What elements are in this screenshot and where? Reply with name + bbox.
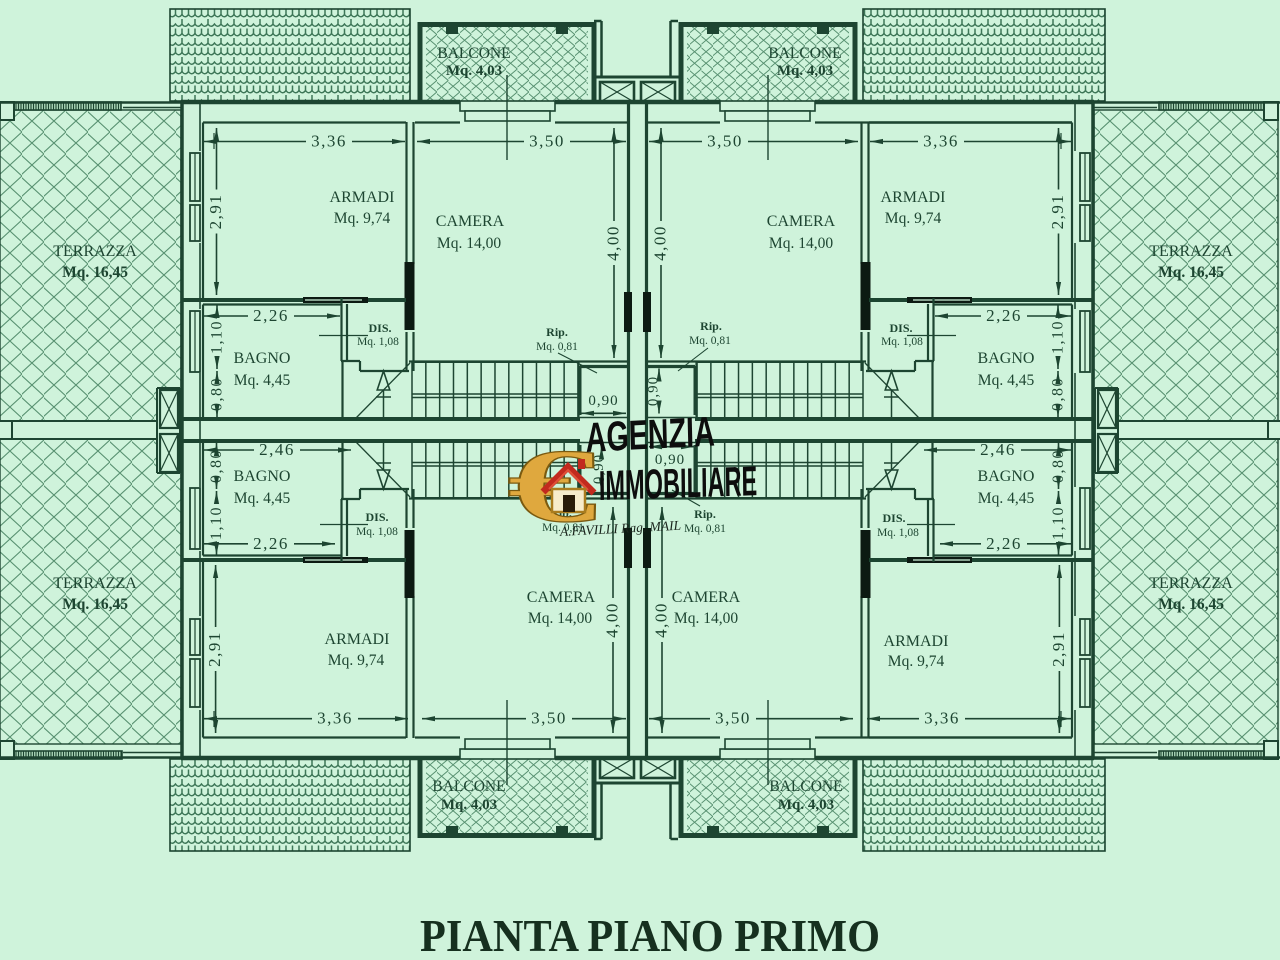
- svg-text:0,90: 0,90: [646, 376, 662, 406]
- svg-text:2,46: 2,46: [980, 440, 1016, 459]
- svg-text:TERRAZZA: TERRAZZA: [53, 243, 137, 260]
- svg-text:2,91: 2,91: [1049, 631, 1068, 667]
- svg-text:2,26: 2,26: [253, 306, 289, 325]
- svg-text:BALCONE: BALCONE: [432, 778, 505, 795]
- svg-text:BALCONE: BALCONE: [769, 778, 842, 795]
- svg-text:3,50: 3,50: [707, 132, 743, 151]
- svg-text:3,36: 3,36: [317, 709, 353, 728]
- svg-text:Mq. 4,03: Mq. 4,03: [777, 63, 833, 79]
- svg-text:DIS.: DIS.: [368, 321, 391, 335]
- svg-text:3,36: 3,36: [923, 132, 959, 151]
- svg-text:Mq. 4,45: Mq. 4,45: [234, 490, 291, 507]
- svg-text:TERRAZZA: TERRAZZA: [1149, 243, 1233, 260]
- svg-text:3,50: 3,50: [529, 132, 565, 151]
- svg-text:PIANTA PIANO PRIMO: PIANTA PIANO PRIMO: [420, 910, 880, 960]
- svg-text:BALCONE: BALCONE: [768, 45, 841, 62]
- svg-text:4,00: 4,00: [651, 225, 670, 261]
- svg-text:Mq. 9,74: Mq. 9,74: [888, 653, 945, 670]
- svg-text:Mq. 9,74: Mq. 9,74: [328, 652, 385, 669]
- svg-text:0,80: 0,80: [208, 449, 225, 483]
- svg-text:Rip.: Rip.: [700, 319, 722, 333]
- svg-text:3,50: 3,50: [715, 709, 751, 728]
- svg-text:IMMOBILIARE: IMMOBILIARE: [599, 458, 758, 510]
- svg-text:3,36: 3,36: [924, 709, 960, 728]
- svg-text:BAGNO: BAGNO: [234, 350, 291, 367]
- svg-text:Mq. 0,81: Mq. 0,81: [536, 341, 578, 353]
- svg-text:Rip.: Rip.: [694, 507, 716, 521]
- svg-text:Mq. 14,00: Mq. 14,00: [437, 235, 501, 252]
- svg-text:3,50: 3,50: [531, 709, 567, 728]
- svg-text:Mq. 4,03: Mq. 4,03: [446, 63, 502, 79]
- svg-text:Mq. 4,45: Mq. 4,45: [978, 372, 1035, 389]
- svg-text:1,10: 1,10: [208, 506, 225, 540]
- svg-text:2,91: 2,91: [205, 631, 224, 667]
- svg-text:CAMERA: CAMERA: [672, 589, 741, 606]
- svg-text:Mq. 16,45: Mq. 16,45: [62, 264, 128, 281]
- svg-text:3,36: 3,36: [311, 132, 347, 151]
- svg-text:Mq. 9,74: Mq. 9,74: [885, 210, 942, 227]
- svg-text:1,10: 1,10: [1050, 320, 1067, 354]
- svg-text:4,00: 4,00: [604, 225, 623, 261]
- svg-text:Mq. 4,03: Mq. 4,03: [778, 797, 834, 813]
- svg-text:Mq. 4,45: Mq. 4,45: [978, 490, 1035, 507]
- svg-text:CAMERA: CAMERA: [767, 213, 836, 230]
- svg-text:ARMADI: ARMADI: [881, 189, 946, 206]
- svg-text:ARMADI: ARMADI: [325, 631, 390, 648]
- svg-text:2,26: 2,26: [986, 306, 1022, 325]
- svg-text:0,80: 0,80: [1050, 449, 1067, 483]
- svg-text:1,10: 1,10: [1050, 506, 1067, 540]
- svg-text:0,90: 0,90: [588, 393, 618, 409]
- svg-text:BAGNO: BAGNO: [978, 468, 1035, 485]
- svg-text:AGENZIA: AGENZIA: [585, 408, 715, 461]
- svg-text:DIS.: DIS.: [882, 511, 905, 525]
- svg-text:TERRAZZA: TERRAZZA: [1149, 575, 1233, 592]
- svg-text:ARMADI: ARMADI: [330, 189, 395, 206]
- svg-text:1,10: 1,10: [209, 320, 226, 354]
- svg-text:CAMERA: CAMERA: [436, 213, 505, 230]
- svg-text:Mq. 14,00: Mq. 14,00: [528, 610, 592, 627]
- svg-text:DIS.: DIS.: [889, 321, 912, 335]
- svg-text:Mq. 14,00: Mq. 14,00: [769, 235, 833, 252]
- svg-text:Mq. 1,08: Mq. 1,08: [877, 527, 919, 539]
- svg-text:BAGNO: BAGNO: [978, 350, 1035, 367]
- svg-text:Mq. 1,08: Mq. 1,08: [881, 336, 923, 348]
- svg-text:Mq. 0,81: Mq. 0,81: [684, 523, 726, 535]
- svg-text:0,80: 0,80: [209, 377, 226, 411]
- svg-text:BAGNO: BAGNO: [234, 468, 291, 485]
- svg-text:Mq. 16,45: Mq. 16,45: [62, 596, 128, 613]
- svg-text:2,26: 2,26: [253, 534, 289, 553]
- svg-text:Mq. 4,45: Mq. 4,45: [234, 372, 291, 389]
- svg-text:2,26: 2,26: [986, 534, 1022, 553]
- svg-text:TERRAZZA: TERRAZZA: [53, 575, 137, 592]
- svg-text:4,00: 4,00: [652, 602, 671, 638]
- svg-text:Mq. 0,81: Mq. 0,81: [689, 335, 731, 347]
- svg-text:Mq. 1,08: Mq. 1,08: [356, 526, 398, 538]
- svg-text:2,46: 2,46: [259, 440, 295, 459]
- svg-text:Mq. 9,74: Mq. 9,74: [334, 210, 391, 227]
- svg-text:Mq. 16,45: Mq. 16,45: [1158, 264, 1224, 281]
- svg-text:2,91: 2,91: [1048, 194, 1067, 230]
- svg-text:Mq. 1,08: Mq. 1,08: [357, 336, 399, 348]
- svg-text:Mq. 4,03: Mq. 4,03: [441, 797, 497, 813]
- svg-text:4,00: 4,00: [603, 602, 622, 638]
- svg-text:ARMADI: ARMADI: [884, 633, 949, 650]
- svg-text:CAMERA: CAMERA: [527, 589, 596, 606]
- svg-text:Mq. 14,00: Mq. 14,00: [674, 610, 738, 627]
- svg-text:Mq. 16,45: Mq. 16,45: [1158, 596, 1224, 613]
- svg-text:2,91: 2,91: [206, 194, 225, 230]
- svg-text:Rip.: Rip.: [546, 325, 568, 339]
- svg-text:0,80: 0,80: [1050, 377, 1067, 411]
- svg-text:BALCONE: BALCONE: [437, 45, 510, 62]
- svg-text:DIS.: DIS.: [365, 510, 388, 524]
